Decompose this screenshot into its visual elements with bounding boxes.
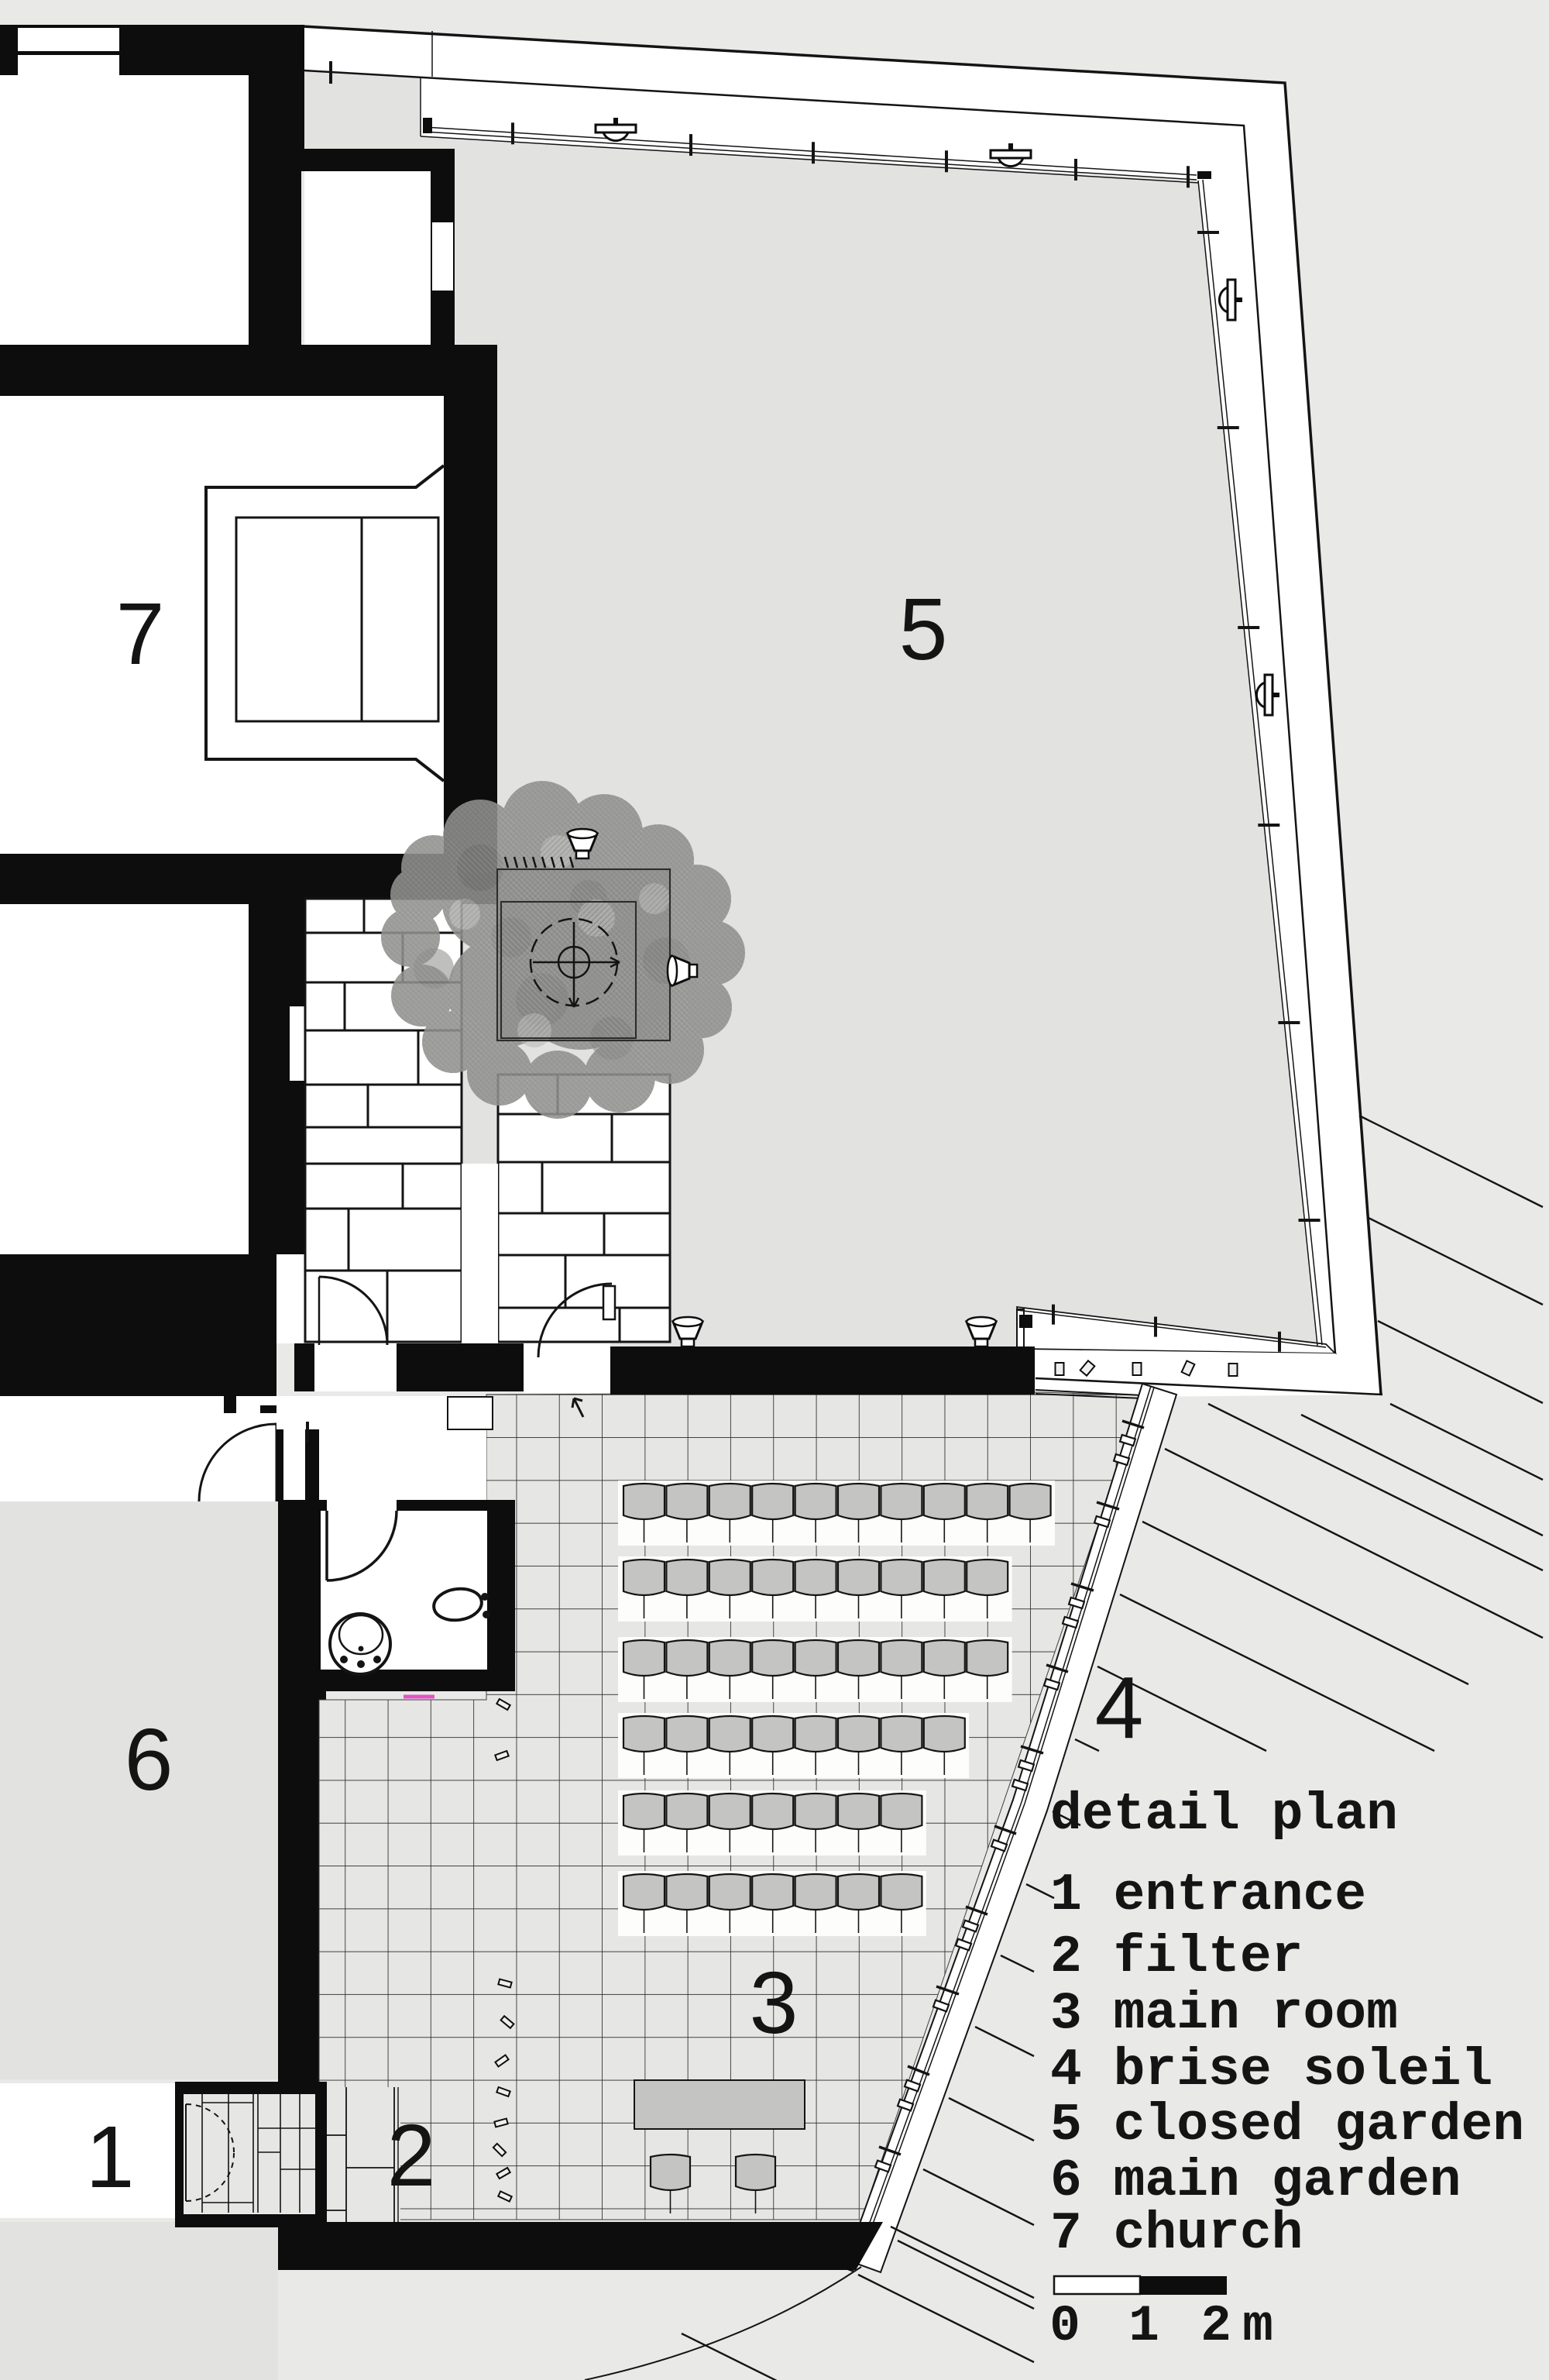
svg-text:3: 3: [750, 1954, 799, 2052]
svg-text:m: m: [1242, 2297, 1273, 2355]
svg-text:1: 1: [1128, 2297, 1159, 2355]
svg-text:6 main garden: 6 main garden: [1050, 2151, 1461, 2211]
svg-text:5 closed garden: 5 closed garden: [1050, 2096, 1524, 2155]
svg-text:6: 6: [125, 1711, 173, 1808]
svg-text:4 brise soleil: 4 brise soleil: [1050, 2041, 1492, 2100]
svg-text:4: 4: [1095, 1659, 1144, 1756]
svg-text:1 entrance: 1 entrance: [1050, 1866, 1366, 1925]
svg-text:detail plan: detail plan: [1050, 1785, 1398, 1845]
svg-text:5: 5: [899, 580, 948, 678]
svg-text:3 main room: 3 main room: [1050, 1984, 1398, 2044]
svg-text:7 church: 7 church: [1050, 2204, 1303, 2264]
svg-text:0: 0: [1049, 2297, 1080, 2355]
svg-text:2 filter: 2 filter: [1050, 1928, 1303, 1987]
svg-text:2: 2: [1200, 2297, 1231, 2355]
svg-text:2: 2: [387, 2107, 436, 2204]
svg-text:1: 1: [86, 2108, 135, 2206]
svg-text:7: 7: [116, 585, 165, 683]
